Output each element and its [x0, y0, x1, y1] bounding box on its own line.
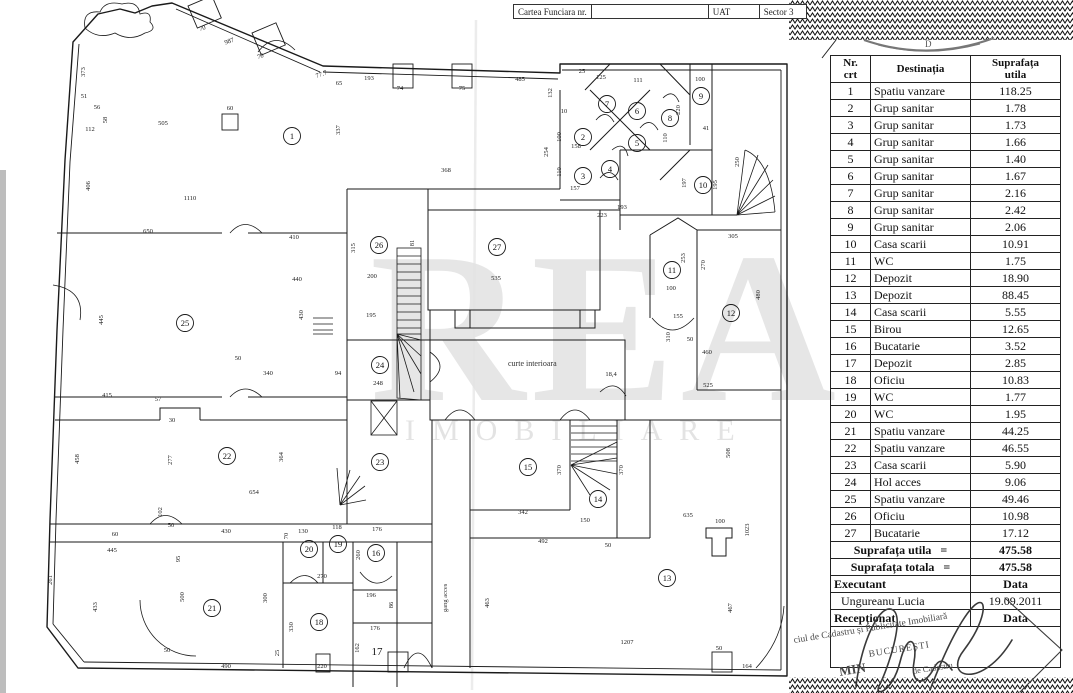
dimension-label: 193 — [617, 204, 627, 211]
dimension-label: 415 — [102, 392, 112, 399]
area-table-row: 25Spatiu vanzare49.46 — [831, 491, 1061, 508]
dimension-label: 460 — [702, 349, 712, 356]
room-number: 4 — [602, 161, 619, 178]
dimension-label: 111 — [633, 77, 642, 84]
cell-area: 1.40 — [971, 151, 1061, 168]
cell-nr: 18 — [831, 372, 871, 389]
cell-dest: Casa scarii — [871, 236, 971, 253]
signature-overlay — [780, 570, 1073, 693]
room-number-text: 24 — [376, 360, 385, 370]
dimension-label: 176 — [372, 526, 383, 533]
cell-dest: Grup sanitar — [871, 168, 971, 185]
dimension-label: 342 — [518, 509, 528, 516]
watermark-rea: REA — [370, 208, 842, 447]
dimension-label: 30 — [169, 417, 176, 424]
dimension-label: 10 — [561, 108, 568, 115]
dimension-label: 70 — [256, 52, 265, 61]
cell-dest: Oficiu — [871, 372, 971, 389]
dimension-label: 248 — [373, 380, 383, 387]
dimension-label: 112 — [85, 126, 95, 133]
cell-dest: Grup sanitar — [871, 100, 971, 117]
room-number: 1 — [284, 128, 301, 145]
cell-area: 10.91 — [971, 236, 1061, 253]
room-number-text: 10 — [699, 180, 708, 190]
areas-table-header-row: Nr.crt Destinația Suprafațautila — [831, 56, 1061, 83]
dimension-label: 176 — [370, 625, 381, 632]
room-number-text: 11 — [668, 265, 676, 275]
dimension-label: 480 — [755, 290, 762, 300]
dimension-label: 220 — [317, 663, 327, 670]
sector-label: Sector 3 — [760, 4, 807, 19]
cell-area: 2.85 — [971, 355, 1061, 372]
dimension-label: 50 — [235, 355, 242, 362]
cell-nr: 11 — [831, 253, 871, 270]
cell-area: 2.16 — [971, 185, 1061, 202]
area-table-row: 3Grup sanitar1.73 — [831, 117, 1061, 134]
dimension-label: 56 — [94, 104, 101, 111]
dimension-label: 193 — [364, 75, 374, 82]
area-table-row: 20WC1.95 — [831, 406, 1061, 423]
area-table-row: 1Spatiu vanzare118.25 — [831, 83, 1061, 100]
cell-area: 1.73 — [971, 117, 1061, 134]
cell-area: 10.98 — [971, 508, 1061, 525]
room-number: 10 — [695, 177, 712, 194]
cell-area: 1.77 — [971, 389, 1061, 406]
cell-area: 3.52 — [971, 338, 1061, 355]
dimension-label: 196 — [366, 592, 377, 599]
dimension-label: 430 — [298, 310, 305, 320]
col-header-nr: Nr.crt — [831, 56, 871, 83]
dimension-label: 270 — [317, 573, 327, 580]
room-number-text: 22 — [223, 451, 232, 461]
room-number: 6 — [629, 103, 646, 120]
room-number: 14 — [590, 491, 607, 508]
cell-area: 46.55 — [971, 440, 1061, 457]
dimension-label: 410 — [289, 234, 299, 241]
room-number-text: 13 — [663, 573, 672, 583]
room-number-text: 18 — [315, 617, 324, 627]
area-table-row: 7Grup sanitar2.16 — [831, 185, 1061, 202]
room-number-text: 4 — [608, 164, 613, 174]
carte-funciara-label: Cartea Funciara nr. — [513, 4, 592, 19]
room-number-text: 7 — [605, 99, 609, 109]
room-number-text: 2 — [581, 132, 585, 142]
room-number-text: 27 — [493, 242, 502, 252]
cell-area: 12.65 — [971, 321, 1061, 338]
dimension-label: 635 — [683, 512, 693, 519]
room-number: 17 — [372, 646, 384, 658]
cell-dest: Depozit — [871, 355, 971, 372]
cell-dest: Grup sanitar — [871, 134, 971, 151]
cell-dest: Grup sanitar — [871, 219, 971, 236]
dimension-label: 305 — [728, 233, 738, 240]
cell-nr: 6 — [831, 168, 871, 185]
dimension-label: 118 — [332, 524, 342, 531]
room-number: 22 — [219, 448, 236, 465]
dimension-label: 50 — [605, 542, 612, 549]
room-number-text: 3 — [581, 171, 585, 181]
dimension-label: 485 — [515, 76, 525, 83]
dimension-label: 58 — [102, 117, 109, 124]
room-number-text: 16 — [372, 548, 381, 558]
cell-dest: Spatiu vanzare — [871, 440, 971, 457]
room-number-text: 23 — [376, 457, 385, 467]
total-utila-value: 475.58 — [971, 542, 1061, 559]
cell-dest: WC — [871, 253, 971, 270]
area-table-row: 11WC1.75 — [831, 253, 1061, 270]
area-table-row: 16Bucatarie3.52 — [831, 338, 1061, 355]
dimension-label: 132 — [547, 88, 554, 98]
dimension-label: 81 — [409, 240, 416, 247]
col-header-destinatia: Destinația — [871, 56, 971, 83]
cell-nr: 12 — [831, 270, 871, 287]
cell-nr: 26 — [831, 508, 871, 525]
courtyard-label: curte interioara — [508, 359, 557, 368]
dimension-label: 25 — [579, 68, 586, 75]
dimension-label: 125 — [596, 74, 606, 81]
dimension-label: 50 — [716, 645, 723, 652]
area-table-row: 10Casa scarii10.91 — [831, 236, 1061, 253]
dimension-label: 430 — [221, 528, 231, 535]
dimension-label: 270 — [700, 260, 707, 270]
cell-nr: 17 — [831, 355, 871, 372]
cell-area: 2.42 — [971, 202, 1061, 219]
dimension-label: 260 — [355, 550, 362, 560]
cell-nr: 20 — [831, 406, 871, 423]
area-table-row: 19WC1.77 — [831, 389, 1061, 406]
area-table-row: 22Spatiu vanzare46.55 — [831, 440, 1061, 457]
cell-dest: Depozit — [871, 270, 971, 287]
dimension-label: 406 — [85, 180, 92, 191]
room-number: 9 — [693, 88, 710, 105]
cell-area: 1.75 — [971, 253, 1061, 270]
room-number-text: 14 — [594, 494, 603, 504]
signature-stroke — [856, 609, 952, 692]
total-utila-row: Suprafața utila = 475.58 — [831, 542, 1061, 559]
dimension-label: 50 — [164, 647, 171, 654]
carte-funciara-value — [592, 4, 709, 19]
dimension-label: 364 — [278, 451, 285, 462]
cell-nr: 23 — [831, 457, 871, 474]
dimension-label: 155 — [673, 313, 683, 320]
cell-area: 1.66 — [971, 134, 1061, 151]
cell-nr: 8 — [831, 202, 871, 219]
col-header-suprafata: Suprafațautila — [971, 56, 1061, 83]
dimension-label: 458 — [74, 454, 81, 464]
dimension-label: 315 — [350, 243, 357, 253]
cadastral-plan-page: REA IMOBILIARE D — [0, 0, 1073, 693]
cell-nr: 7 — [831, 185, 871, 202]
dimension-label: 340 — [263, 370, 273, 377]
signature-loop — [930, 603, 1012, 691]
cell-dest: Grup sanitar — [871, 151, 971, 168]
room-number-text: 17 — [372, 646, 384, 658]
dimension-label: 650 — [143, 228, 153, 235]
cell-nr: 24 — [831, 474, 871, 491]
dimension-label: 100 — [666, 285, 676, 292]
area-table-row: 2Grup sanitar1.78 — [831, 100, 1061, 117]
cell-dest: Casa scarii — [871, 304, 971, 321]
cell-nr: 3 — [831, 117, 871, 134]
dimension-label: 492 — [538, 538, 548, 545]
cell-dest: WC — [871, 389, 971, 406]
scan-edge-strip — [0, 170, 6, 693]
dimension-label: 150 — [580, 517, 590, 524]
room-number: 16 — [368, 545, 385, 562]
dimension-label: 200 — [367, 273, 377, 280]
dimension-label: 100 — [556, 132, 563, 142]
cell-nr: 19 — [831, 389, 871, 406]
cell-area: 18.90 — [971, 270, 1061, 287]
cell-area: 118.25 — [971, 83, 1061, 100]
cell-dest: Spatiu vanzare — [871, 423, 971, 440]
cell-nr: 9 — [831, 219, 871, 236]
room-number-text: 25 — [181, 318, 190, 328]
room-number: 20 — [301, 541, 318, 558]
dimension-label: 100 — [715, 518, 725, 525]
cell-area: 49.46 — [971, 491, 1061, 508]
cell-nr: 14 — [831, 304, 871, 321]
watermark: REA IMOBILIARE — [370, 208, 842, 447]
dimension-label: 65 — [336, 80, 343, 87]
dimension-label: 50 — [687, 336, 694, 343]
dimension-label: 74 — [397, 85, 404, 92]
dimension-label: 300 — [262, 593, 269, 603]
dimension-label: 86 — [388, 601, 395, 608]
dimension-label: 433 — [92, 602, 99, 612]
cell-area: 17.12 — [971, 525, 1061, 542]
cell-dest: Bucatarie — [871, 338, 971, 355]
cell-nr: 16 — [831, 338, 871, 355]
dimension-label: 254 — [543, 146, 550, 157]
stair-room10-fan — [737, 150, 775, 215]
cell-dest: Depozit — [871, 287, 971, 304]
dimension-label: 60 — [227, 105, 234, 112]
area-table-row: 17Depozit2.85 — [831, 355, 1061, 372]
room-number-text: 8 — [668, 113, 672, 123]
hatch-top-right — [789, 0, 1073, 40]
dimension-label: 253 — [680, 253, 687, 263]
area-table-row: 8Grup sanitar2.42 — [831, 202, 1061, 219]
room-number: 13 — [659, 570, 676, 587]
cell-dest: WC — [871, 406, 971, 423]
dimension-label: 368 — [441, 167, 451, 174]
area-table-row: 9Grup sanitar2.06 — [831, 219, 1061, 236]
dimension-label: 654 — [249, 489, 260, 496]
dimension-label: 490 — [221, 663, 231, 670]
room-number: 3 — [575, 168, 592, 185]
area-table-row: 4Grup sanitar1.66 — [831, 134, 1061, 151]
cell-dest: Spatiu vanzare — [871, 83, 971, 100]
dimension-label: 223 — [597, 212, 607, 219]
area-table-row: 26Oficiu10.98 — [831, 508, 1061, 525]
dimension-label: 95 — [175, 556, 182, 563]
area-table-row: 24Hol acces9.06 — [831, 474, 1061, 491]
dimension-label: 467 — [727, 602, 734, 613]
dimension-label: 535 — [491, 275, 501, 282]
room-number-text: 19 — [334, 539, 343, 549]
cell-nr: 1 — [831, 83, 871, 100]
room-number: 25 — [177, 315, 194, 332]
area-table-row: 23Casa scarii5.90 — [831, 457, 1061, 474]
cell-area: 2.06 — [971, 219, 1061, 236]
cell-nr: 27 — [831, 525, 871, 542]
dimension-label: 41 — [703, 125, 710, 132]
room-number: 15 — [520, 459, 537, 476]
cell-area: 1.67 — [971, 168, 1061, 185]
cell-dest: Grup sanitar — [871, 117, 971, 134]
dimension-label: 75 — [459, 85, 466, 92]
room-number-text: 20 — [305, 544, 314, 554]
cell-area: 1.78 — [971, 100, 1061, 117]
dimension-label: 337 — [335, 124, 342, 135]
cell-area: 5.55 — [971, 304, 1061, 321]
dimension-label: 130 — [298, 528, 308, 535]
cell-dest: Bucatarie — [871, 525, 971, 542]
room-number: 19 — [330, 536, 347, 553]
dimension-label: 102 — [157, 507, 164, 517]
cell-dest: Grup sanitar — [871, 185, 971, 202]
stair-room23-fan — [337, 468, 366, 505]
cell-area: 88.45 — [971, 287, 1061, 304]
room-number: 7 — [599, 96, 616, 113]
dimension-label: 310 — [665, 332, 672, 342]
cell-dest: Birou — [871, 321, 971, 338]
room-number-text: 1 — [290, 131, 294, 141]
cell-dest: Oficiu — [871, 508, 971, 525]
cell-nr: 4 — [831, 134, 871, 151]
cell-dest: Spatiu vanzare — [871, 491, 971, 508]
area-table-row: 27Bucatarie17.12 — [831, 525, 1061, 542]
room-number: 2 — [575, 129, 592, 146]
cell-nr: 25 — [831, 491, 871, 508]
stair-small-room25 — [313, 318, 333, 334]
cadastral-header-bar: Cartea Funciara nr. UAT Sector 3 — [513, 4, 807, 19]
area-table-row: 14Casa scarii5.55 — [831, 304, 1061, 321]
dimension-label: 445 — [107, 547, 117, 554]
room-number-text: 5 — [635, 138, 639, 148]
dimension-label: 370 — [556, 465, 563, 475]
dimension-label: 1110 — [184, 195, 197, 202]
room-number: 23 — [372, 454, 389, 471]
dimension-label: 70 — [198, 24, 207, 33]
cell-area: 44.25 — [971, 423, 1061, 440]
dimension-label: 500 — [179, 592, 186, 602]
dimension-label: 57 — [155, 396, 162, 403]
cell-dest: Grup sanitar — [871, 202, 971, 219]
dimension-label: 370 — [618, 465, 625, 475]
stamp-border-1 — [1005, 598, 1062, 650]
cell-dest: Casa scarii — [871, 457, 971, 474]
dimension-label: 51 — [81, 93, 88, 100]
dimension-label: 1023 — [744, 524, 751, 537]
room-number: 21 — [204, 600, 221, 617]
dimension-label: 508 — [725, 448, 732, 458]
dimension-label: 463 — [484, 598, 491, 608]
dimension-label: 505 — [158, 120, 168, 127]
area-table-row: 13Depozit88.45 — [831, 287, 1061, 304]
passage-label: gang acces — [442, 583, 449, 612]
dimension-label: 25 — [274, 650, 281, 657]
room-number: 8 — [662, 110, 679, 127]
dimension-label: 50 — [168, 522, 175, 529]
dimension-label: 373 — [80, 67, 87, 77]
cell-area: 1.95 — [971, 406, 1061, 423]
dimension-label: 100 — [695, 76, 705, 83]
room-number-text: 12 — [727, 308, 736, 318]
dimension-label: 94 — [335, 370, 342, 377]
area-table-row: 5Grup sanitar1.40 — [831, 151, 1061, 168]
cell-nr: 5 — [831, 151, 871, 168]
room-number-text: 9 — [699, 91, 703, 101]
watermark-imobiliare: IMOBILIARE — [405, 414, 752, 447]
dimension-label: 197 — [681, 177, 688, 188]
cell-nr: 2 — [831, 100, 871, 117]
room-number: 18 — [311, 614, 328, 631]
dimension-label: 110 — [556, 167, 563, 177]
area-table-row: 21Spatiu vanzare44.25 — [831, 423, 1061, 440]
uat-label: UAT — [709, 4, 760, 19]
room-number-text: 6 — [635, 106, 639, 116]
room-number-text: 26 — [375, 240, 384, 250]
room-number-text: 21 — [208, 603, 217, 613]
dimension-label: 250 — [734, 157, 741, 167]
dimension-label: 158 — [571, 143, 581, 150]
dimension-label: 60 — [112, 531, 119, 538]
dimension-label: 162 — [354, 643, 361, 653]
dimension-label: 220 — [675, 105, 682, 115]
cell-nr: 13 — [831, 287, 871, 304]
cell-dest: Hol acces — [871, 474, 971, 491]
cell-area: 9.06 — [971, 474, 1061, 491]
dimension-label: 110 — [662, 133, 669, 143]
dimension-label: 445 — [98, 315, 105, 325]
stamp-border-2 — [1020, 650, 1062, 692]
dimension-label: 195 — [366, 312, 376, 319]
dimension-label: 987 — [224, 36, 236, 46]
dimension-label: 261 — [47, 575, 54, 585]
dimension-label: 330 — [288, 622, 295, 632]
area-table-row: 18Oficiu10.83 — [831, 372, 1061, 389]
dimension-label: 18,4 — [605, 371, 617, 378]
cell-nr: 22 — [831, 440, 871, 457]
cell-nr: 15 — [831, 321, 871, 338]
cell-area: 5.90 — [971, 457, 1061, 474]
cell-nr: 21 — [831, 423, 871, 440]
dimension-label: 70 — [283, 533, 290, 540]
cell-area: 10.83 — [971, 372, 1061, 389]
dimension-label: 157 — [570, 185, 581, 192]
area-table-row: 12Depozit18.90 — [831, 270, 1061, 287]
dimension-label: 440 — [292, 276, 302, 283]
seal-letter: D — [925, 39, 932, 49]
dimension-label: 525 — [703, 382, 713, 389]
cell-nr: 10 — [831, 236, 871, 253]
dimension-label: 277 — [167, 454, 174, 465]
room-number-text: 15 — [524, 462, 533, 472]
area-table-row: 6Grup sanitar1.67 — [831, 168, 1061, 185]
area-table-row: 15Birou12.65 — [831, 321, 1061, 338]
dimension-label: 1207 — [621, 639, 635, 646]
dimension-label: 164 — [742, 663, 753, 670]
dimension-label: 195 — [712, 180, 719, 190]
